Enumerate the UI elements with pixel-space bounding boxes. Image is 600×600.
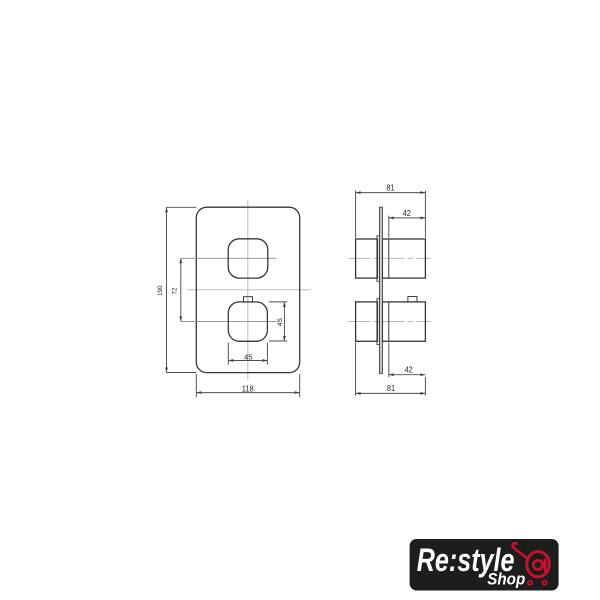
svg-text:42: 42: [405, 366, 413, 375]
svg-text:81: 81: [387, 384, 395, 393]
svg-text:Shop: Shop: [487, 571, 525, 589]
svg-text:81: 81: [386, 184, 394, 193]
svg-text:42: 42: [403, 209, 411, 218]
svg-text:118: 118: [242, 384, 254, 393]
svg-text:45: 45: [277, 318, 284, 327]
svg-text:190: 190: [157, 285, 164, 296]
svg-text:45: 45: [244, 352, 252, 361]
svg-text:72: 72: [171, 287, 178, 294]
